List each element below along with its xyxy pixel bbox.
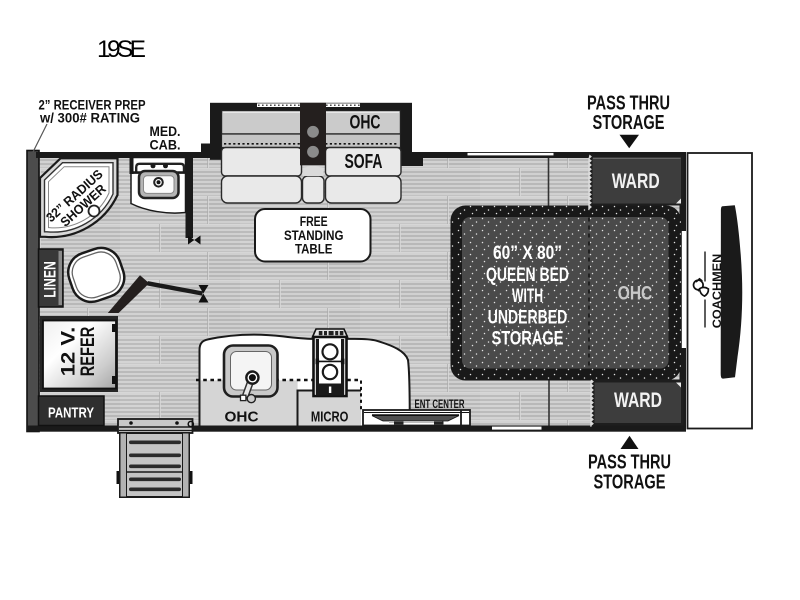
svg-text:w/ 300# RATING: w/ 300# RATING xyxy=(39,111,140,126)
svg-text:SOFA: SOFA xyxy=(345,151,383,173)
svg-text:STORAGE: STORAGE xyxy=(594,471,666,493)
svg-text:FREE: FREE xyxy=(300,214,328,229)
svg-text:STORAGE: STORAGE xyxy=(492,329,564,350)
svg-text:OHC: OHC xyxy=(350,112,381,134)
svg-text:UNDERBED: UNDERBED xyxy=(488,308,568,329)
svg-text:STORAGE: STORAGE xyxy=(593,112,665,134)
svg-text:OHC: OHC xyxy=(618,282,653,304)
svg-text:PASS THRU: PASS THRU xyxy=(588,451,671,473)
svg-text:COACHMEN: COACHMEN xyxy=(710,254,724,329)
svg-text:ENT CENTER: ENT CENTER xyxy=(415,399,465,411)
svg-text:WARD: WARD xyxy=(614,389,662,412)
svg-text:19SE: 19SE xyxy=(97,36,146,63)
svg-text:PANTRY: PANTRY xyxy=(48,406,94,422)
svg-text:OHC: OHC xyxy=(225,408,259,425)
svg-text:WITH: WITH xyxy=(512,286,543,307)
svg-text:TABLE: TABLE xyxy=(295,242,333,257)
svg-text:60” X 80”: 60” X 80” xyxy=(493,243,562,264)
svg-text:LINEN: LINEN xyxy=(41,261,60,298)
svg-text:REFER: REFER xyxy=(78,327,99,377)
svg-text:12 V.: 12 V. xyxy=(59,327,80,377)
svg-text:QUEEN BED: QUEEN BED xyxy=(486,265,569,286)
svg-text:CAB.: CAB. xyxy=(150,137,181,152)
svg-text:STANDING: STANDING xyxy=(284,228,344,243)
svg-text:MICRO: MICRO xyxy=(311,408,349,425)
svg-text:WARD: WARD xyxy=(612,170,660,193)
